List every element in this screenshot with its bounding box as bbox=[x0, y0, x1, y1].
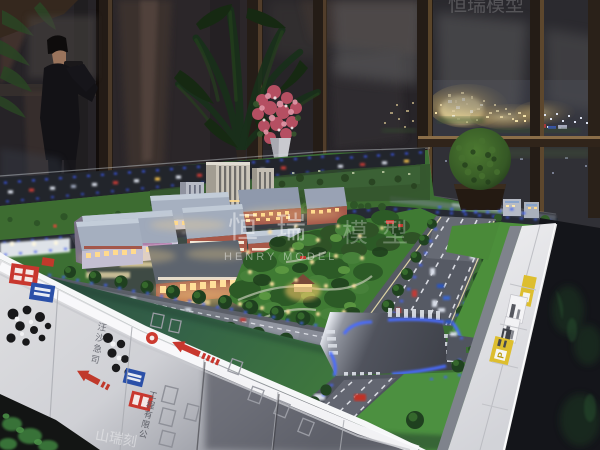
svg-text:恒瑞: 恒瑞 bbox=[228, 212, 324, 245]
svg-text:模型: 模型 bbox=[342, 218, 422, 248]
svg-text:HENRY MODEL: HENRY MODEL bbox=[224, 251, 337, 263]
svg-text:恒瑞模型: 恒瑞模型 bbox=[448, 0, 524, 16]
